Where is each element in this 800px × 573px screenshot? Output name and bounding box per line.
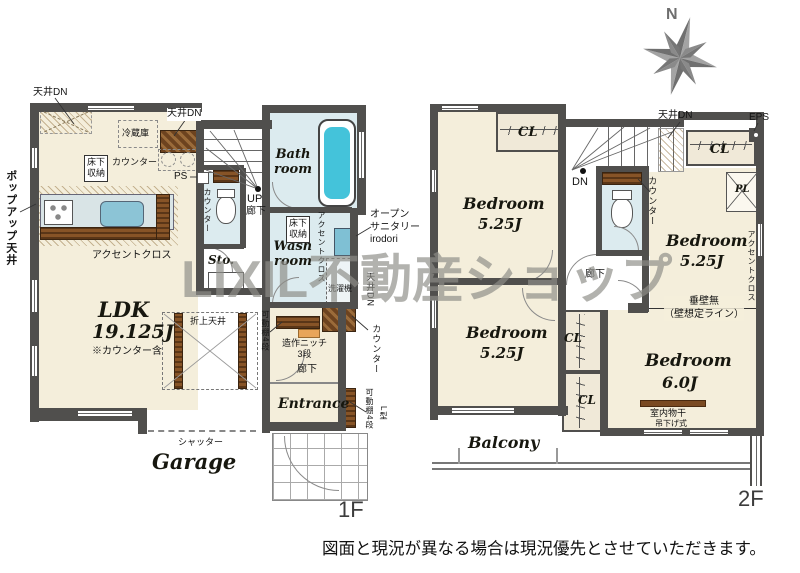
toilet-tank-1f [217, 189, 235, 198]
window [430, 170, 438, 192]
floor2-label: 2F [738, 488, 764, 510]
toilet-icon-1f [216, 196, 236, 224]
toilet-tank-2f [612, 190, 632, 200]
wall [268, 302, 340, 308]
label-washer: 洗濯機 [328, 284, 352, 294]
wall [196, 120, 272, 129]
label-counter-kitchen: カウンター [112, 157, 157, 168]
window [442, 104, 478, 112]
wall [262, 105, 365, 113]
wall [438, 278, 560, 285]
entrance-step-line [268, 382, 340, 384]
label-dn: DN [572, 176, 588, 190]
wall [596, 250, 648, 256]
room-label-bedroom-sw-size: 5.25J [480, 345, 524, 362]
compass: N [618, 0, 748, 100]
ceiling-dn-hatch-kitchen [40, 110, 92, 134]
closet-label-ne: CL [710, 143, 730, 158]
stove-icon [44, 200, 73, 225]
room-label-bath: Bath room [270, 148, 316, 178]
room-label-garage: Garage [152, 450, 236, 474]
toilet-icon-2f [611, 198, 633, 228]
wall [596, 166, 648, 172]
balcony-post [458, 448, 460, 464]
window [30, 280, 39, 312]
window [30, 346, 39, 376]
stairs-landing-2f [566, 127, 596, 172]
coffered-pillar-right [238, 313, 247, 389]
kitchen-counter-edge-v [156, 194, 170, 240]
room-label-bedroom-ne-size: 5.25J [680, 253, 724, 270]
window [78, 409, 132, 418]
label-counter-toilet-1f: カウンター [202, 188, 212, 244]
room-label-entrance: Entrance [278, 396, 349, 412]
label-hall-entrance: 廊下 [297, 364, 317, 377]
wall [596, 166, 602, 256]
label-ceiling-dn-2f: 天井DN [658, 110, 692, 123]
closet-label-nw: CL [518, 126, 538, 141]
wall [204, 244, 244, 249]
wall [262, 107, 270, 433]
floor1-label: 1F [338, 499, 364, 521]
label-eps: EPS [749, 112, 769, 125]
window [690, 428, 728, 436]
label-ceiling-dn-a: 天井DN [33, 87, 67, 100]
label-niche: 造作ニッチ 3段 [282, 338, 327, 361]
bathtub-water [324, 127, 350, 199]
compass-north-label: N [666, 6, 678, 24]
label-indoor-drying-type: 吊下げ式 [655, 419, 687, 429]
window [452, 406, 514, 415]
label-open-sanitary: オープン サニタリー irodori [370, 209, 420, 247]
toilet-counter-shelf-2f [602, 172, 642, 185]
kitchen-counter-edge-h [40, 227, 170, 240]
hall-shelf [276, 316, 320, 329]
label-shutter: シャッター [178, 437, 223, 448]
room-label-bedroom-ne-name: Bedroom [666, 232, 748, 250]
label-shelf-entrance-type: L型 [378, 406, 388, 428]
label-no-hanging-wall: 垂壁無 （壁想定ライン） [664, 296, 744, 321]
counter-chair-1 [161, 152, 176, 167]
compass-rose-icon [618, 0, 748, 100]
ps-box [197, 172, 209, 184]
toilet-counter-shelf-1f [213, 170, 239, 183]
closet-label-mid-lower: CL [578, 394, 596, 408]
wall [268, 207, 352, 213]
wall [138, 408, 147, 434]
label-shelf-hall: 可動棚4段 [260, 310, 270, 366]
window [30, 148, 39, 168]
floor-plan-canvas: N 天井DN 天井DN 冷蔵庫 カウンター 床下 収納 PS ポップアップ天井 … [0, 0, 800, 573]
room-label-balcony: Balcony [468, 434, 539, 452]
wall [430, 104, 438, 420]
room-label-bedroom-se-name: Bedroom [645, 352, 732, 372]
eps-dot [754, 133, 758, 137]
label-underfloor-storage-kitchen: 床下 収納 [84, 155, 108, 182]
label-fridge: 冷蔵庫 [122, 128, 149, 139]
balcony-post [556, 448, 558, 464]
ceiling-dn-hatch-2f [658, 128, 684, 172]
niche-box [298, 329, 320, 338]
room-label-bedroom-se-size: 6.0J [662, 374, 697, 392]
closet-label-mid-upper: CL [564, 332, 582, 346]
wall [196, 288, 270, 295]
label-indoor-drying: 室内物干 [650, 408, 686, 419]
label-hall-2f: 廊下 [585, 269, 605, 282]
window [357, 132, 366, 178]
wall [204, 165, 244, 170]
wall [558, 104, 566, 416]
label-accent-cross-wash: アクセントクロス [316, 211, 326, 273]
label-hall-stairs: 廊下 [246, 206, 266, 219]
hall-2f-floor [566, 168, 598, 313]
label-pl: PL [735, 184, 750, 196]
label-coffered-ceiling: 折上天井 [190, 316, 226, 327]
label-counter-hall: カウンター [370, 324, 381, 382]
label-ceiling-dn-b: 天井DN [167, 108, 201, 121]
room-label-bedroom-nw-size: 5.25J [478, 216, 522, 233]
indoor-drying-bar [640, 400, 706, 407]
balcony-rail-right [750, 436, 762, 486]
label-up: UP [247, 193, 262, 207]
wall [266, 422, 346, 431]
window [756, 224, 764, 256]
label-ldk-note: ※カウンター含 [92, 346, 162, 359]
wall [756, 254, 764, 436]
window [88, 104, 134, 112]
label-ceiling-dn-c: 天井DN [364, 272, 375, 322]
wall [600, 428, 764, 436]
label-underfloor-storage-wash: 床下 収納 [286, 216, 310, 243]
coffered-pillar-left [174, 313, 183, 389]
garage-shutter-line [148, 430, 256, 432]
label-accent-cross-2f: アクセントクロス [746, 230, 756, 316]
room-label-bedroom-sw-name: Bedroom [466, 324, 548, 342]
room-label-ldk-size: 19.125J [92, 322, 174, 344]
window [430, 300, 438, 328]
label-counter-toilet-2f: カウンター [646, 176, 657, 234]
label-shelf-entrance: 可動棚4段 [364, 388, 374, 442]
kitchen-island-sink [100, 201, 144, 227]
counter-chair-2 [180, 152, 195, 167]
window [644, 428, 682, 436]
room-label-ldk-name: LDK [98, 298, 149, 322]
label-popup-ceiling: ポップアップ天井 [3, 170, 17, 280]
label-accent-cross-kitchen: アクセントクロス [92, 250, 172, 263]
room-label-wash: Wash room [268, 240, 318, 270]
room-label-bedroom-nw-name: Bedroom [463, 195, 545, 213]
label-ps: PS [174, 171, 187, 184]
room-label-sto: Sto. [208, 254, 234, 268]
balcony-rail [432, 462, 762, 470]
disclaimer-text: 図面と現況が異なる場合は現況優先とさせていただきます。 [322, 539, 766, 560]
wall [600, 310, 608, 432]
